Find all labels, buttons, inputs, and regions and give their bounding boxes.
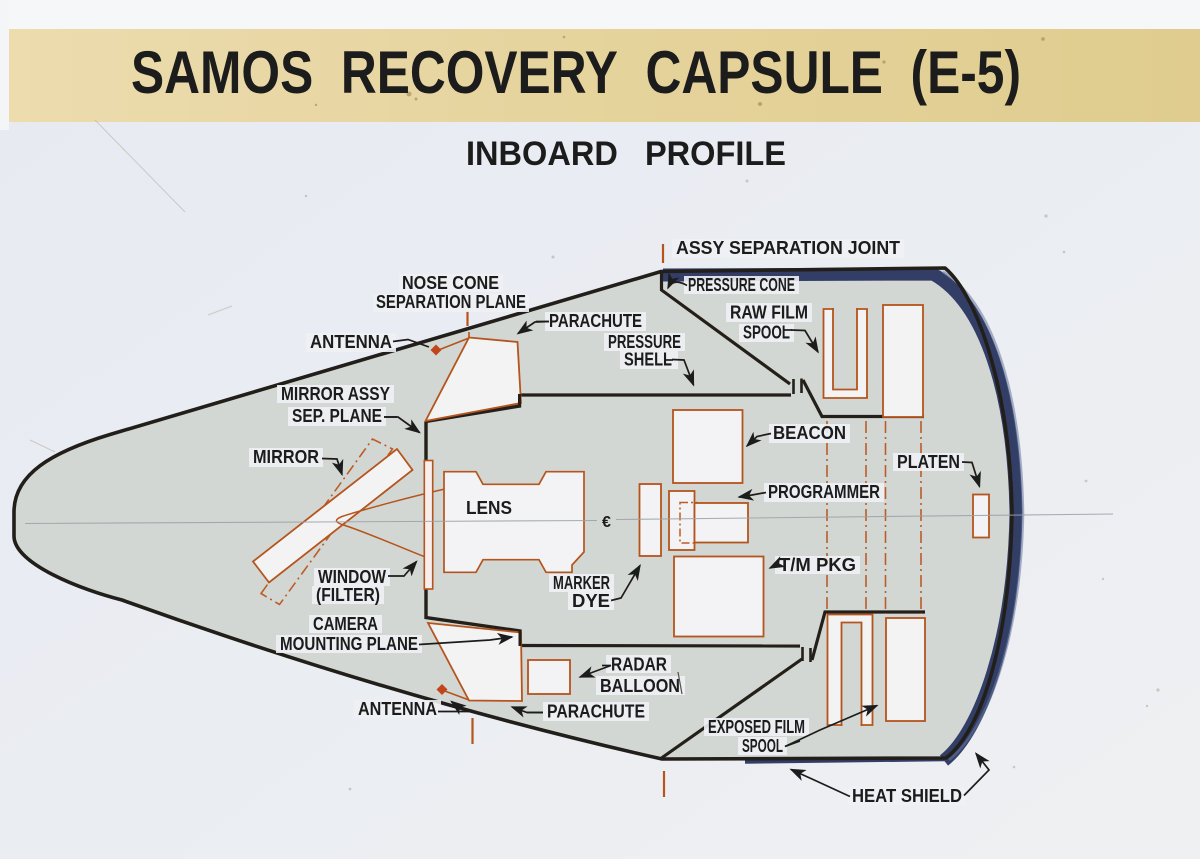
svg-text:EXPOSED FILM: EXPOSED FILM (708, 717, 805, 737)
svg-text:MIRROR ASSY: MIRROR ASSY (281, 384, 390, 404)
svg-text:WINDOW: WINDOW (318, 567, 386, 587)
svg-text:T/M PKG: T/M PKG (779, 555, 856, 575)
svg-text:SPOOL: SPOOL (743, 323, 790, 343)
svg-text:CAMERA: CAMERA (313, 614, 378, 634)
svg-text:SPOOL: SPOOL (742, 736, 783, 756)
svg-text:PROGRAMMER: PROGRAMMER (768, 482, 880, 502)
svg-text:INBOARD PROFILE: INBOARD PROFILE (466, 135, 786, 173)
svg-text:MOUNTING PLANE: MOUNTING PLANE (280, 634, 418, 654)
svg-text:ASSY SEPARATION JOINT: ASSY SEPARATION JOINT (676, 238, 900, 258)
svg-text:DYE: DYE (572, 591, 610, 611)
svg-text:ANTENNA: ANTENNA (358, 699, 437, 719)
svg-text:NOSE CONE: NOSE CONE (402, 273, 499, 293)
svg-text:PLATEN: PLATEN (897, 452, 960, 472)
svg-text:RAW FILM: RAW FILM (730, 303, 808, 323)
svg-text:RADAR: RADAR (611, 655, 667, 675)
svg-text:€: € (602, 514, 611, 531)
svg-text:BEACON: BEACON (773, 423, 846, 443)
svg-text:PARACHUTE: PARACHUTE (547, 702, 645, 722)
svg-text:SEP. PLANE: SEP. PLANE (292, 406, 382, 426)
svg-text:HEAT SHIELD: HEAT SHIELD (852, 786, 962, 806)
svg-text:SAMOS RECOVERY CAPSULE (E-5: SAMOS RECOVERY CAPSULE (E-5) (131, 39, 1021, 106)
svg-text:BALLOON: BALLOON (600, 676, 680, 696)
svg-text:(FILTER): (FILTER) (316, 585, 380, 605)
svg-text:ANTENNA: ANTENNA (310, 332, 392, 352)
svg-text:PARACHUTE: PARACHUTE (549, 311, 642, 331)
svg-text:SEPARATION PLANE: SEPARATION PLANE (376, 292, 526, 312)
svg-text:MIRROR: MIRROR (253, 447, 319, 467)
svg-text:PRESSURE CONE: PRESSURE CONE (688, 275, 795, 295)
svg-text:LENS: LENS (466, 498, 512, 518)
svg-text:MARKER: MARKER (553, 573, 610, 593)
